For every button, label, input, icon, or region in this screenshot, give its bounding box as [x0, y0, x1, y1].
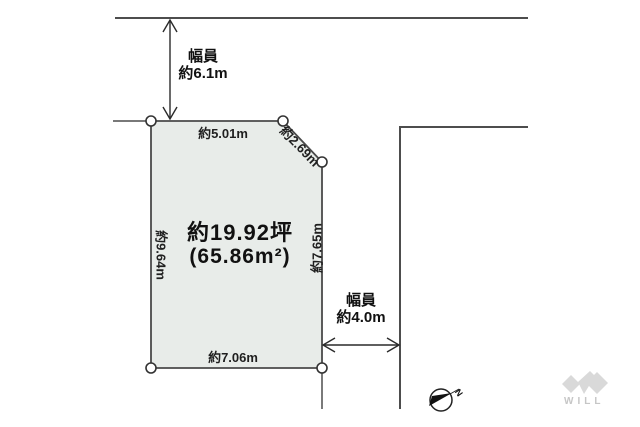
plot-area-label: 約19.92坪 (65.86m²)	[187, 220, 293, 269]
compass-north-label: N	[453, 387, 465, 398]
corner-marker-bottom-left	[146, 363, 156, 373]
road-width-right-line1: 幅員	[336, 292, 385, 309]
dimension-left: 約9.64m	[153, 230, 168, 280]
road-width-right-line2: 約4.0m	[336, 309, 385, 326]
plot-area-sqm: (65.86m²)	[187, 245, 293, 269]
dimension-bottom: 約7.06m	[208, 351, 258, 366]
road-width-right-label: 幅員 約4.0m	[336, 292, 385, 327]
dimension-top: 約5.01m	[198, 127, 248, 142]
road-width-top-label: 幅員 約6.1m	[178, 48, 227, 83]
compass: N	[429, 387, 465, 411]
road-width-right-arrow	[323, 338, 399, 352]
plot-area-tsubo: 約19.92坪	[187, 220, 293, 245]
land-plot-diagram: N 幅員 約6.1m 幅員 約4.0m 約5.01m 約2.69m 約9.64m…	[0, 0, 640, 427]
will-logo-icon	[562, 371, 608, 394]
dimension-right: 約7.65m	[311, 223, 326, 273]
road-width-top-line2: 約6.1m	[178, 65, 227, 82]
logo-diamond-small	[562, 375, 580, 393]
road-width-top-arrow	[163, 20, 177, 119]
will-logo-text: WILL	[564, 396, 604, 408]
diagram-canvas: N	[0, 0, 640, 427]
corner-marker-bottom-right	[317, 363, 327, 373]
road-line-right-block	[400, 127, 528, 409]
road-width-top-line1: 幅員	[178, 48, 227, 65]
corner-marker-top-left	[146, 116, 156, 126]
